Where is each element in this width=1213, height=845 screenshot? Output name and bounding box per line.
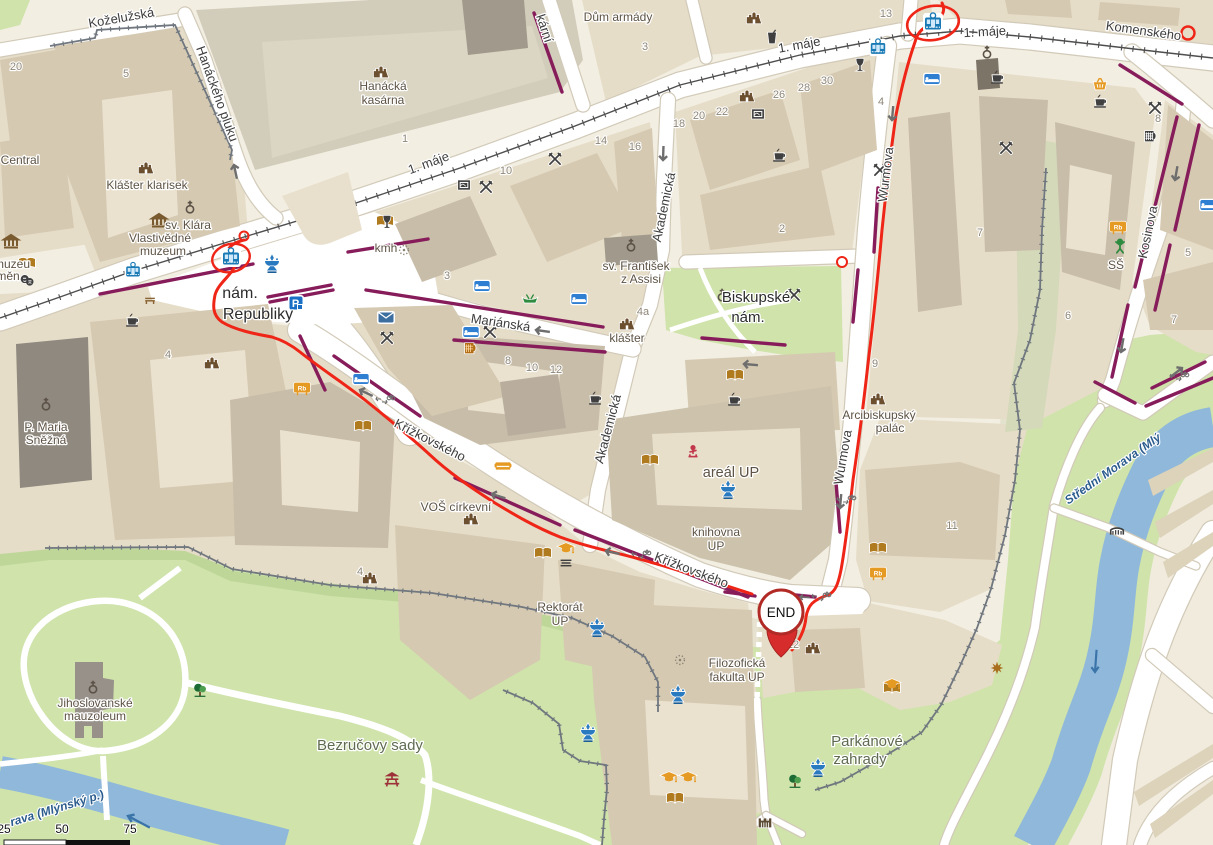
svg-text:Vlastivědné: Vlastivědné	[129, 231, 191, 245]
svg-text:1: 1	[402, 133, 408, 145]
svg-text:9: 9	[872, 358, 878, 370]
svg-text:z Assisi: z Assisi	[621, 272, 661, 286]
svg-text:Parkánové: Parkánové	[831, 733, 903, 750]
svg-text:klášter: klášter	[609, 331, 644, 345]
svg-text:Republiky: Republiky	[223, 306, 293, 323]
svg-text:P. Maria: P. Maria	[24, 420, 67, 434]
svg-text:Filozofická: Filozofická	[709, 656, 766, 670]
svg-text:18: 18	[673, 118, 685, 130]
svg-text:4a: 4a	[637, 306, 650, 318]
svg-text:zahrady: zahrady	[833, 751, 887, 768]
svg-text:areál UP: areál UP	[703, 465, 759, 481]
svg-text:sv. Klára: sv. Klára	[165, 218, 211, 232]
svg-text:VOŠ církevní: VOŠ církevní	[421, 499, 492, 514]
svg-text:UP: UP	[552, 614, 569, 628]
svg-text:20: 20	[10, 61, 22, 73]
svg-text:5: 5	[1185, 247, 1191, 259]
svg-text:SŠ: SŠ	[1108, 257, 1124, 272]
svg-text:8: 8	[505, 355, 511, 367]
svg-text:50: 50	[55, 822, 69, 836]
svg-text:4: 4	[878, 96, 884, 108]
svg-text:6: 6	[1065, 310, 1071, 322]
svg-text:16: 16	[629, 141, 641, 153]
svg-text:mauzoleum: mauzoleum	[64, 709, 126, 723]
svg-text:26: 26	[773, 89, 785, 101]
svg-text:7: 7	[977, 227, 983, 239]
svg-text:2: 2	[779, 223, 785, 235]
svg-text:kmh: kmh	[375, 241, 398, 255]
svg-text:30: 30	[821, 75, 833, 87]
svg-text:Jihoslovanské: Jihoslovanské	[57, 696, 133, 710]
svg-text:12: 12	[550, 364, 562, 376]
svg-text:11: 11	[946, 520, 957, 532]
svg-text:8: 8	[1155, 113, 1161, 125]
svg-text:muzeum: muzeum	[140, 244, 186, 258]
svg-text:Biskupské: Biskupské	[722, 289, 790, 306]
svg-text:UP: UP	[708, 539, 725, 553]
svg-text:END: END	[767, 605, 796, 620]
svg-text:25: 25	[0, 822, 11, 836]
svg-text:knihovna: knihovna	[692, 525, 740, 539]
svg-text:3: 3	[642, 41, 648, 53]
svg-text:Sněžná: Sněžná	[26, 433, 67, 447]
svg-text:měn: měn	[0, 269, 20, 283]
svg-text:Hanácká: Hanácká	[359, 79, 407, 93]
svg-text:10: 10	[526, 362, 538, 374]
svg-text:Klášter klarisek: Klášter klarisek	[106, 178, 188, 192]
svg-text:Bezručovy sady: Bezručovy sady	[317, 737, 423, 754]
svg-text:28: 28	[798, 82, 810, 94]
svg-text:7: 7	[1171, 314, 1177, 326]
svg-text:1. máje: 1. máje	[963, 23, 1006, 40]
svg-text:20: 20	[693, 110, 705, 122]
svg-text:fakulta UP: fakulta UP	[709, 670, 764, 684]
svg-text:13: 13	[880, 8, 892, 20]
svg-text:palác: palác	[876, 421, 905, 435]
svg-text:5: 5	[123, 68, 129, 80]
svg-text:14: 14	[595, 135, 607, 147]
svg-text:4: 4	[165, 349, 171, 361]
svg-text:sv. František: sv. František	[602, 259, 670, 273]
svg-text:Rektorát: Rektorát	[537, 600, 583, 614]
svg-text:75: 75	[123, 822, 137, 836]
svg-text:4: 4	[357, 566, 363, 578]
svg-text:3: 3	[444, 270, 450, 282]
svg-text:Dům armády: Dům armády	[584, 10, 653, 24]
svg-text:nám.: nám.	[222, 285, 258, 302]
svg-text:22: 22	[716, 106, 728, 118]
svg-text:nám.: nám.	[731, 309, 764, 326]
svg-text:Arcibiskupský: Arcibiskupský	[842, 408, 915, 422]
svg-text:10: 10	[500, 165, 512, 177]
svg-text:Central: Central	[1, 153, 40, 167]
svg-text:kasárna: kasárna	[362, 93, 405, 107]
